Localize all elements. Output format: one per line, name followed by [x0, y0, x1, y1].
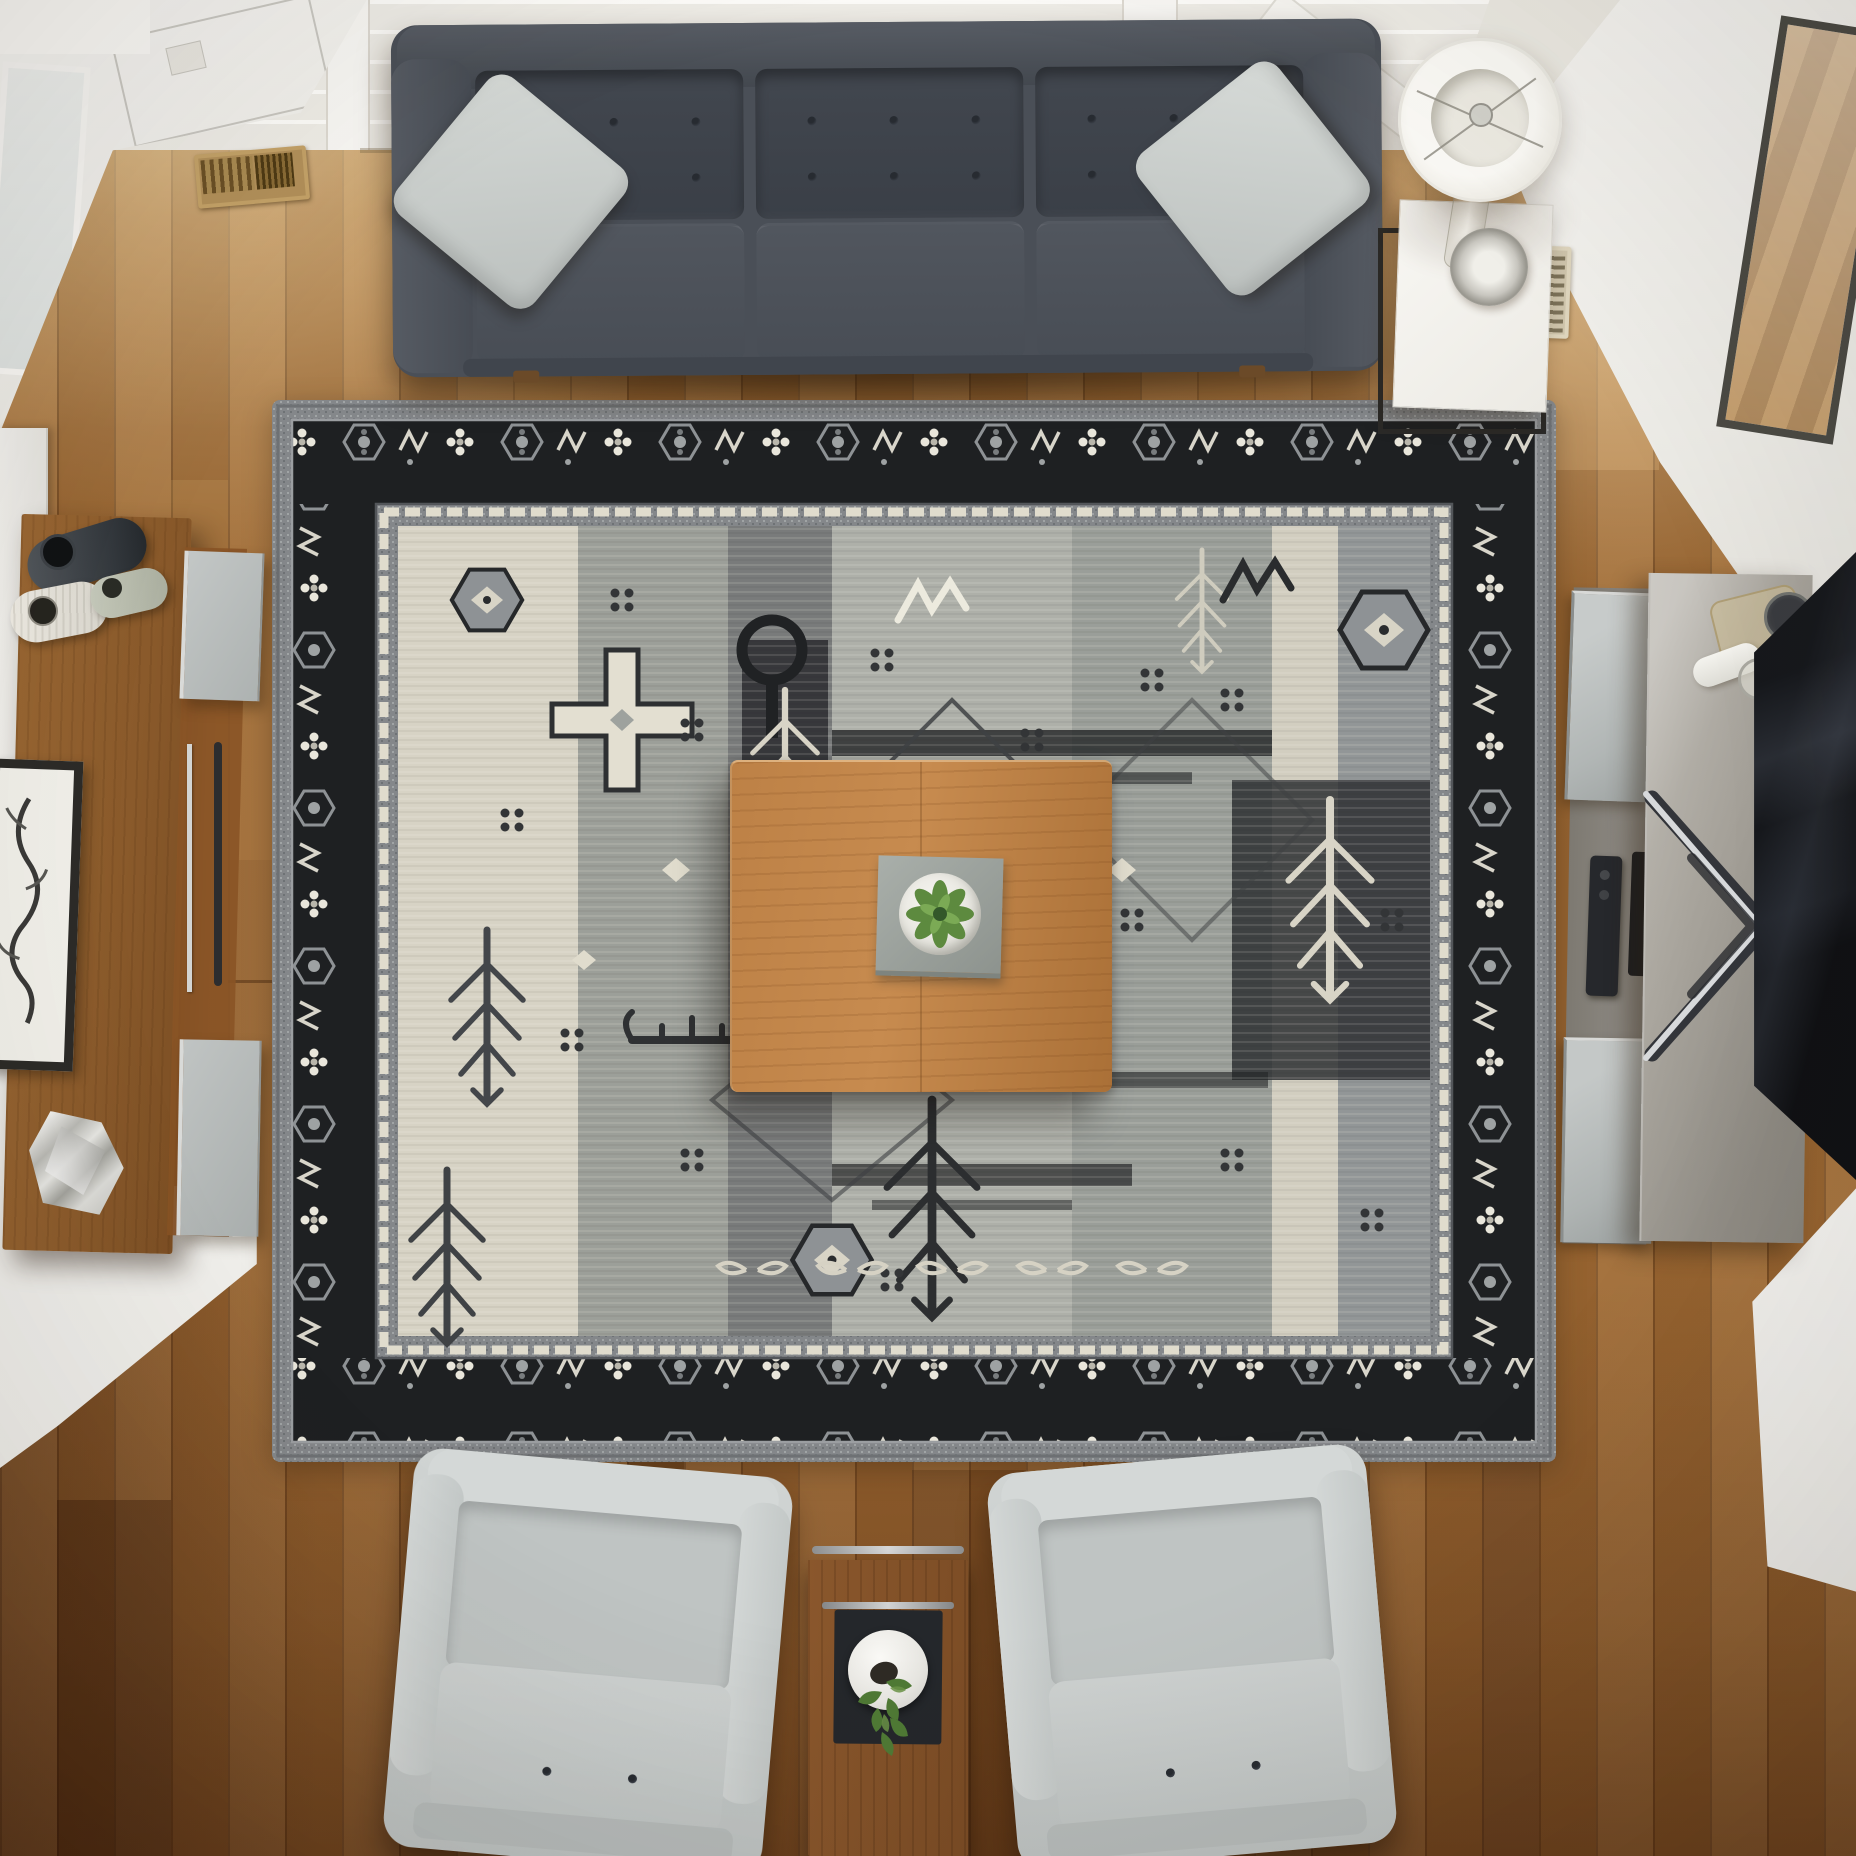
table-lamp: [1398, 38, 1562, 202]
end-table-greenery: [838, 1674, 942, 1794]
sofa-leg: [1239, 365, 1265, 377]
armchair-left: [381, 1446, 794, 1856]
remote-control: [1586, 855, 1623, 996]
sofa: [391, 19, 1383, 378]
floor-vent-left: [194, 145, 310, 209]
deck-window: [1716, 15, 1856, 444]
end-table-handle: [812, 1546, 964, 1554]
end-table-handle: [822, 1602, 954, 1609]
chair-back-cushion: [445, 1500, 742, 1690]
sofa-leg: [513, 370, 539, 382]
sofa-seat-cushion: [756, 221, 1025, 362]
lamp-finial: [1469, 103, 1493, 127]
art-botanical-sketch: [0, 768, 56, 1044]
chair-back-cushion: [1037, 1496, 1334, 1686]
sideboard-door-top: [179, 551, 264, 702]
tv: [1752, 552, 1856, 1180]
framed-art: [0, 758, 83, 1071]
floor-plank-dark: [57, 1500, 171, 1856]
sideboard-handle-black: [214, 742, 222, 986]
armchair-right: [985, 1442, 1398, 1856]
window-pane: [0, 0, 150, 54]
coffee-table: [730, 760, 1112, 1092]
sideboard-handle-silver: [187, 744, 192, 992]
vase-dark-mouth: [40, 534, 76, 570]
end-table: [808, 1546, 968, 1856]
living-room-top-view: [0, 0, 1856, 1856]
sideboard-door-bottom: [176, 1039, 261, 1236]
vase-white-mouth: [28, 596, 58, 626]
lamp-foot: [1450, 228, 1528, 306]
succulent-plant: [904, 878, 976, 950]
vase-sage-mouth: [102, 578, 122, 598]
sofa-back-cushion: [755, 67, 1024, 219]
floor-plank-dark: [1482, 1460, 1539, 1856]
